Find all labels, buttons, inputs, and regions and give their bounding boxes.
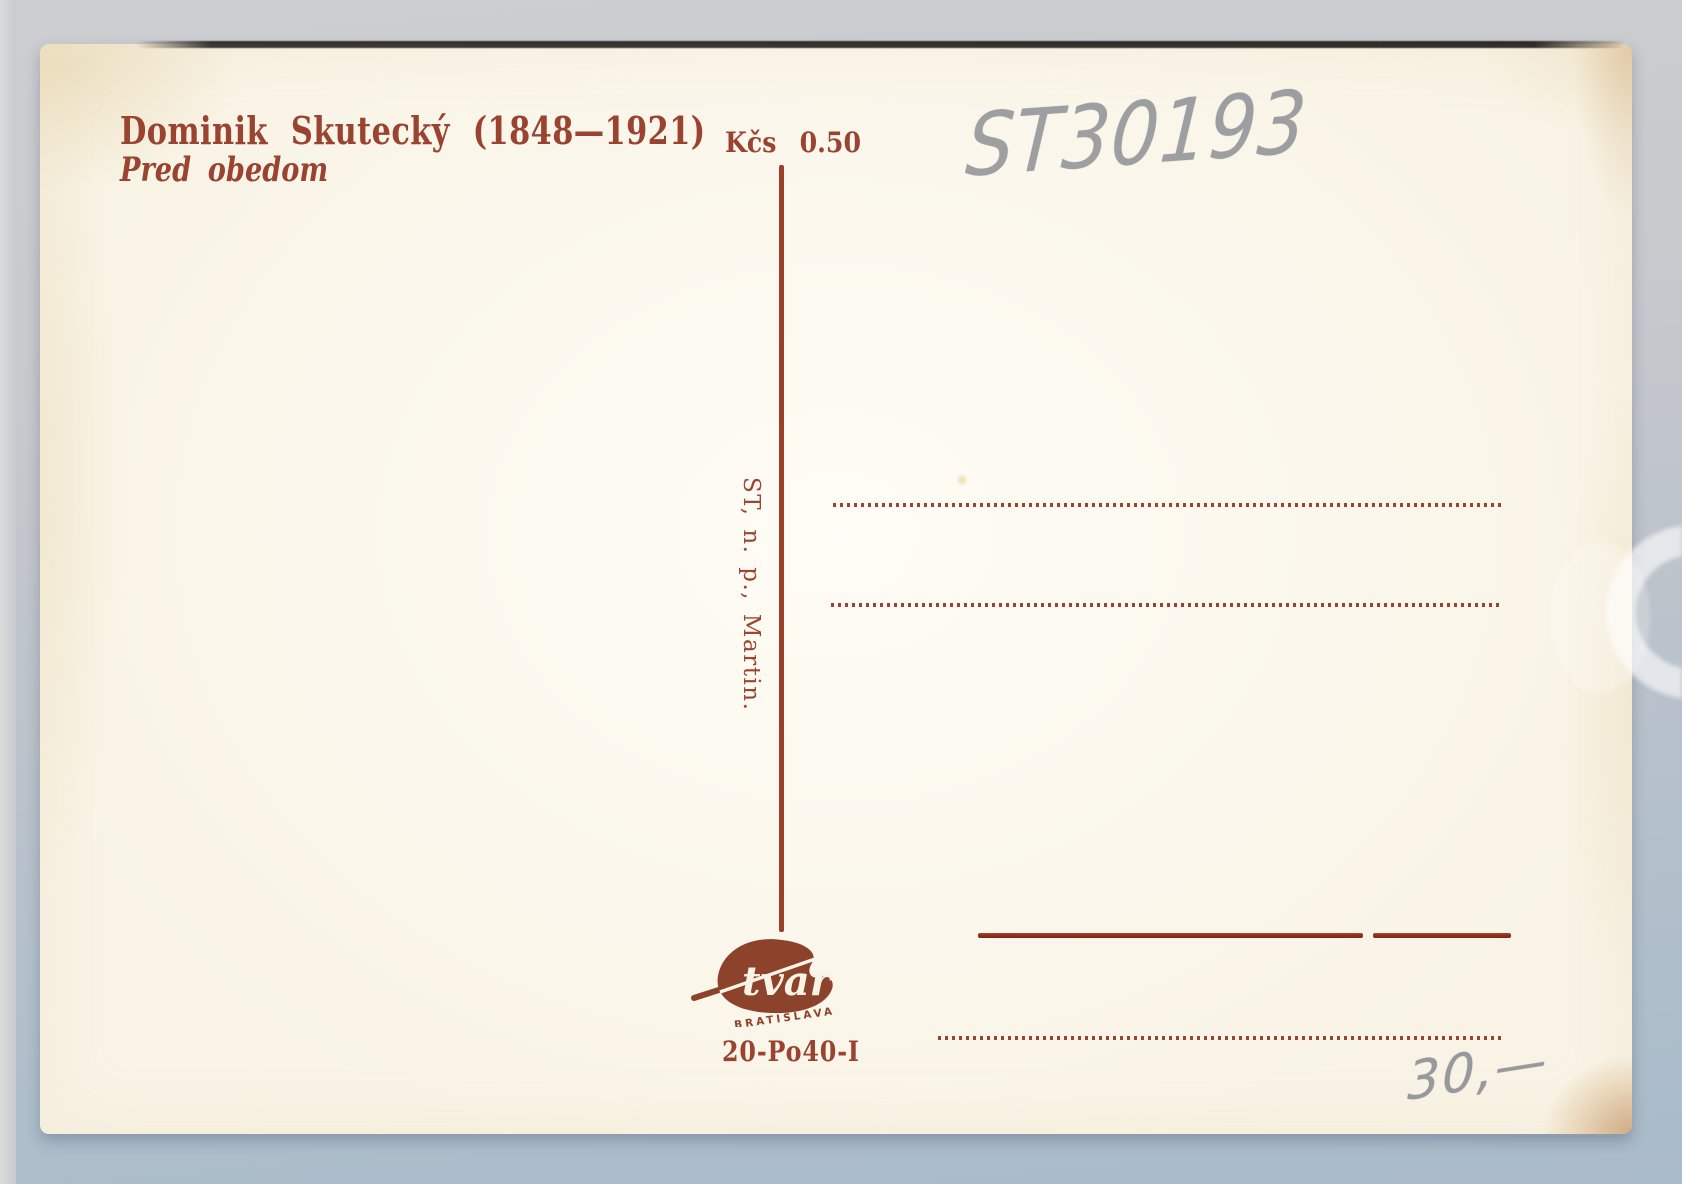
print-code: 20-Po40-I <box>722 1035 860 1068</box>
bottom-rule-left <box>978 933 1363 938</box>
address-dotted-line-1 <box>833 503 1503 507</box>
card-top-edge-shadow <box>136 41 1624 48</box>
publisher-imprint: ST, n. p., Martin. <box>738 477 764 711</box>
bottom-rule-right <box>1373 933 1511 938</box>
artwork-title: Pred obedom <box>120 150 328 190</box>
address-dotted-line-2 <box>831 603 1499 607</box>
paper-stain-spot <box>955 474 969 486</box>
photo-backdrop: Dominik Skutecký (1848—1921) Pred obedom… <box>0 0 1682 1184</box>
handwritten-inventory-number: ST30193 <box>963 72 1310 197</box>
artist-name: Dominik Skutecký (1848—1921) <box>120 108 706 153</box>
logo-wordmark: tvar <box>742 958 834 1005</box>
postcard-back: Dominik Skutecký (1848—1921) Pred obedom… <box>40 44 1632 1134</box>
center-divider-line <box>779 165 784 932</box>
worn-corner <box>1542 1054 1632 1134</box>
handwritten-price: 30,— <box>1407 1030 1549 1113</box>
tvar-publisher-logo: tvar BRATISLAVA <box>690 932 850 1027</box>
price-label: Kčs 0.50 <box>725 126 861 159</box>
bottom-dotted-line <box>938 1036 1505 1040</box>
card-edge-stain <box>1572 44 1632 224</box>
backdrop-left-strip <box>0 0 16 1184</box>
